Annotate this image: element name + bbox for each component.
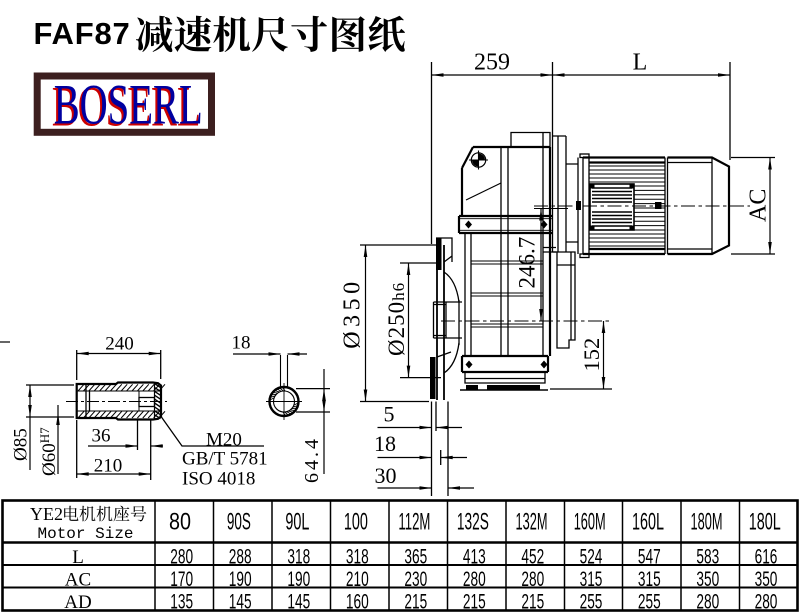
svg-text:18: 18 <box>374 431 396 456</box>
svg-text:180L: 180L <box>749 509 781 536</box>
svg-text:350: 350 <box>696 567 719 591</box>
svg-text:GB/T 5781: GB/T 5781 <box>182 449 268 470</box>
svg-text:L: L <box>72 547 84 568</box>
svg-text:M20: M20 <box>206 430 242 451</box>
svg-text:112M: 112M <box>398 509 430 536</box>
svg-text:280: 280 <box>755 590 778 614</box>
svg-text:90S: 90S <box>227 509 251 536</box>
svg-text:524: 524 <box>580 545 603 569</box>
svg-text:583: 583 <box>696 545 719 569</box>
svg-text:280: 280 <box>521 567 544 591</box>
svg-text:230: 230 <box>404 567 427 591</box>
svg-text:452: 452 <box>521 545 544 569</box>
svg-text:160L: 160L <box>632 509 664 536</box>
svg-text:318: 318 <box>287 545 310 569</box>
svg-text:AC: AC <box>65 570 91 591</box>
svg-text:255: 255 <box>638 590 661 614</box>
svg-text:FAF87: FAF87 <box>34 16 131 51</box>
svg-text:315: 315 <box>638 567 661 591</box>
svg-text:80: 80 <box>169 509 191 536</box>
svg-text:AC: AC <box>746 189 772 222</box>
svg-text:Motor Size: Motor Size <box>38 525 134 543</box>
svg-text:160: 160 <box>346 590 369 614</box>
svg-text:Ø350: Ø350 <box>340 277 366 348</box>
svg-text:170: 170 <box>170 567 193 591</box>
svg-text:547: 547 <box>638 545 661 569</box>
svg-text:Ø250h6: Ø250h6 <box>384 282 409 356</box>
svg-text:280: 280 <box>170 545 193 569</box>
svg-text:288: 288 <box>229 545 252 569</box>
svg-text:240: 240 <box>105 334 134 355</box>
svg-text:280: 280 <box>463 567 486 591</box>
svg-text:152: 152 <box>579 338 604 372</box>
svg-text:160M: 160M <box>574 509 606 536</box>
svg-text:145: 145 <box>287 590 310 614</box>
svg-text:YE2: YE2 <box>30 504 63 524</box>
svg-text:Ø60H7: Ø60H7 <box>37 427 60 476</box>
svg-text:350: 350 <box>755 567 778 591</box>
svg-text:145: 145 <box>229 590 252 614</box>
svg-text:190: 190 <box>287 567 310 591</box>
svg-text:100: 100 <box>344 509 368 536</box>
svg-text:132M: 132M <box>516 509 548 536</box>
svg-text:616: 616 <box>755 545 778 569</box>
svg-text:315: 315 <box>580 567 603 591</box>
svg-text:BOSERL: BOSERL <box>54 74 203 137</box>
svg-text:36: 36 <box>92 426 111 447</box>
svg-text:215: 215 <box>404 590 427 614</box>
svg-text:190: 190 <box>229 567 252 591</box>
svg-text:180M: 180M <box>691 509 723 536</box>
svg-text:L: L <box>633 50 648 76</box>
svg-text:90L: 90L <box>285 509 309 536</box>
svg-text:64.4: 64.4 <box>301 436 323 483</box>
svg-text:210: 210 <box>94 456 123 477</box>
svg-text:AD: AD <box>64 592 91 613</box>
svg-text:132S: 132S <box>457 509 489 536</box>
svg-text:215: 215 <box>521 590 544 614</box>
svg-text:259: 259 <box>474 50 510 76</box>
svg-text:246.7: 246.7 <box>515 237 540 289</box>
svg-text:Ø85: Ø85 <box>11 428 32 461</box>
svg-text:215: 215 <box>463 590 486 614</box>
svg-text:18: 18 <box>232 333 251 354</box>
svg-text:280: 280 <box>696 590 719 614</box>
svg-text:318: 318 <box>346 545 369 569</box>
svg-text:135: 135 <box>170 590 193 614</box>
svg-text:255: 255 <box>580 590 603 614</box>
svg-text:210: 210 <box>346 567 369 591</box>
svg-text:365: 365 <box>404 545 427 569</box>
svg-text:ISO 4018: ISO 4018 <box>182 469 255 490</box>
svg-text:30: 30 <box>375 463 397 488</box>
svg-text:5: 5 <box>384 402 395 427</box>
svg-text:413: 413 <box>463 545 486 569</box>
